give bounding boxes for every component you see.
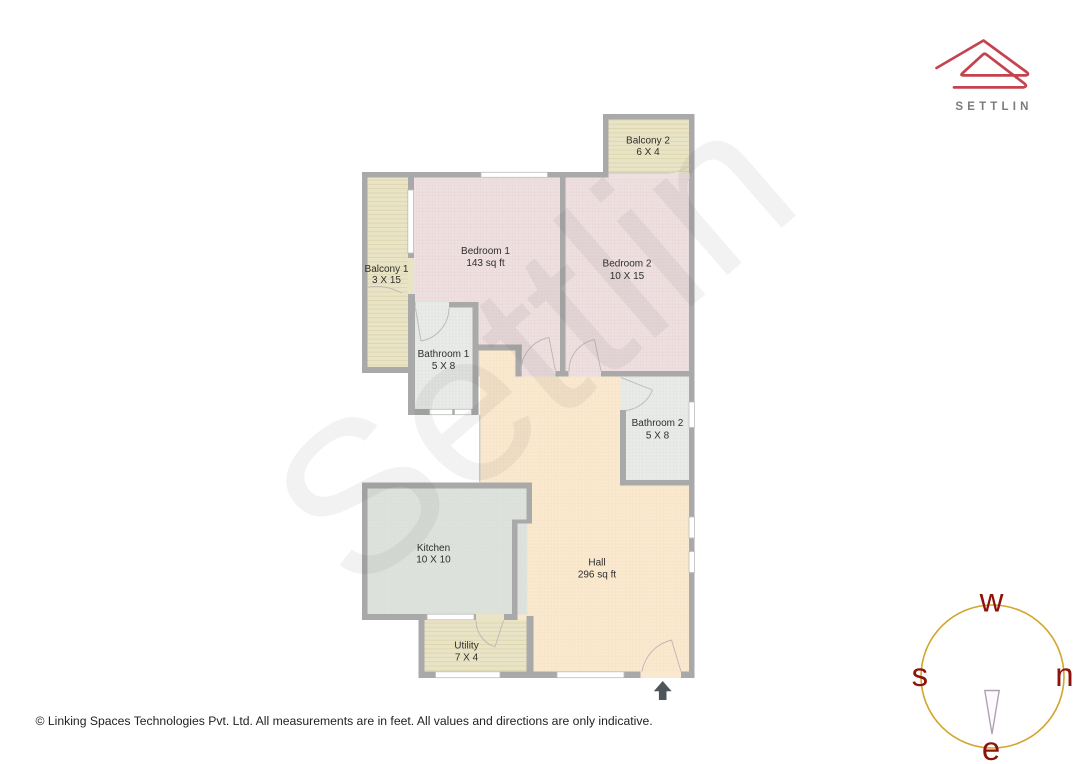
svg-text:s: s: [912, 656, 929, 693]
svg-text:n: n: [1055, 656, 1073, 693]
svg-text:10 X 15: 10 X 15: [610, 271, 645, 282]
svg-text:5 X 8: 5 X 8: [432, 361, 456, 372]
svg-text:10 X 10: 10 X 10: [416, 555, 451, 566]
svg-text:Kitchen: Kitchen: [417, 543, 450, 554]
svg-text:6 X 4: 6 X 4: [636, 147, 660, 158]
svg-text:296 sq ft: 296 sq ft: [578, 570, 617, 581]
svg-text:Bathroom 1: Bathroom 1: [418, 349, 470, 360]
svg-text:Bedroom 1: Bedroom 1: [461, 246, 510, 257]
svg-text:Bedroom 2: Bedroom 2: [603, 259, 652, 270]
svg-text:7 X 4: 7 X 4: [455, 652, 479, 663]
svg-text:SETTLIN: SETTLIN: [955, 101, 1032, 113]
svg-text:143 sq ft: 143 sq ft: [466, 258, 505, 269]
svg-text:e: e: [982, 730, 1000, 764]
svg-text:3 X 15: 3 X 15: [372, 275, 401, 286]
svg-text:Utility: Utility: [454, 641, 478, 652]
svg-text:Balcony 2: Balcony 2: [626, 136, 670, 147]
svg-text:Bathroom 2: Bathroom 2: [632, 418, 684, 429]
svg-text:w: w: [979, 582, 1004, 619]
svg-text:Hall: Hall: [588, 558, 605, 569]
svg-text:5 X 8: 5 X 8: [646, 431, 670, 442]
svg-text:© Linking Spaces Technologies: © Linking Spaces Technologies Pvt. Ltd. …: [36, 714, 653, 728]
svg-text:Balcony 1: Balcony 1: [365, 264, 409, 275]
